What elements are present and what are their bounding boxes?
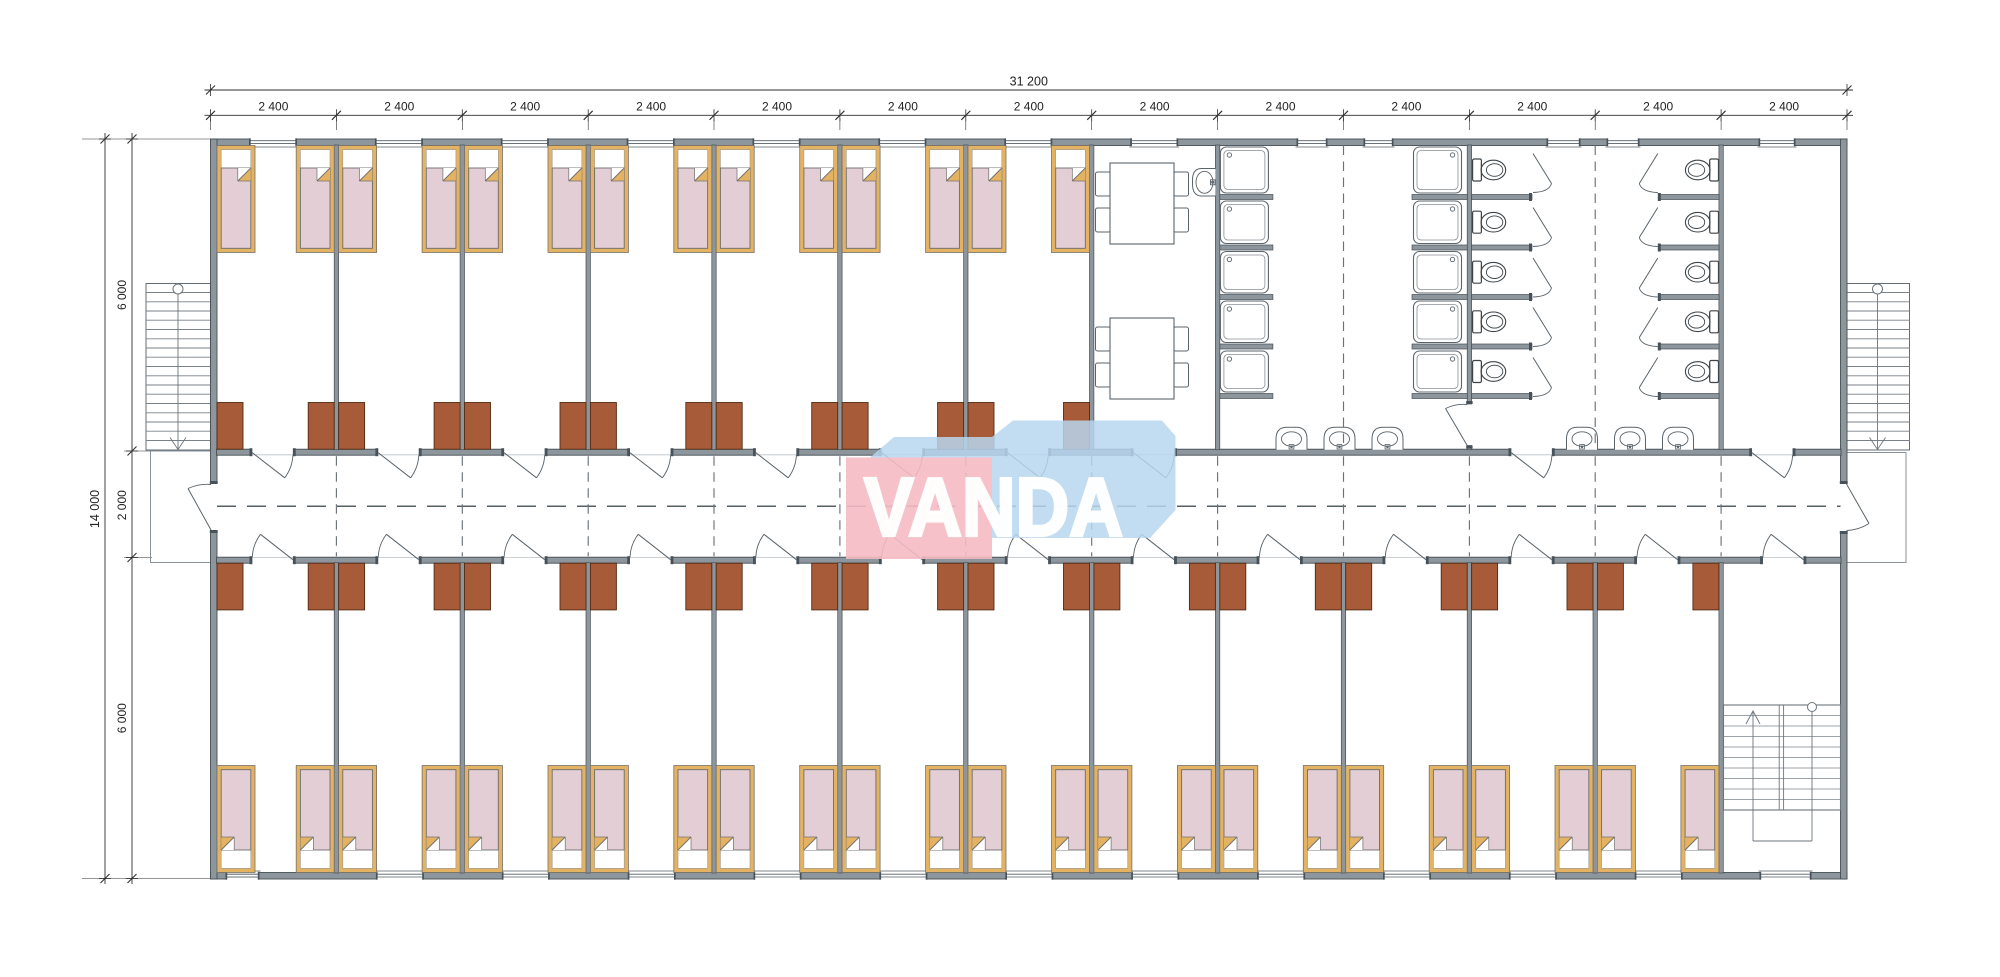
svg-text:2 400: 2 400: [1643, 100, 1673, 114]
svg-text:14 000: 14 000: [88, 490, 102, 528]
svg-text:2 400: 2 400: [258, 100, 288, 114]
svg-text:2 000: 2 000: [115, 490, 129, 520]
svg-text:2 400: 2 400: [888, 100, 918, 114]
svg-text:6 000: 6 000: [115, 280, 129, 310]
svg-text:VANDA: VANDA: [864, 461, 1123, 554]
svg-text:2 400: 2 400: [1265, 100, 1295, 114]
svg-text:2 400: 2 400: [636, 100, 666, 114]
svg-text:2 400: 2 400: [1517, 100, 1547, 114]
svg-text:2 400: 2 400: [1014, 100, 1044, 114]
svg-text:2 400: 2 400: [384, 100, 414, 114]
svg-text:2 400: 2 400: [1391, 100, 1421, 114]
svg-text:31 200: 31 200: [1010, 75, 1048, 89]
svg-text:2 400: 2 400: [1140, 100, 1170, 114]
svg-text:6 000: 6 000: [115, 703, 129, 733]
svg-text:2 400: 2 400: [510, 100, 540, 114]
svg-text:2 400: 2 400: [762, 100, 792, 114]
svg-text:2 400: 2 400: [1769, 100, 1799, 114]
